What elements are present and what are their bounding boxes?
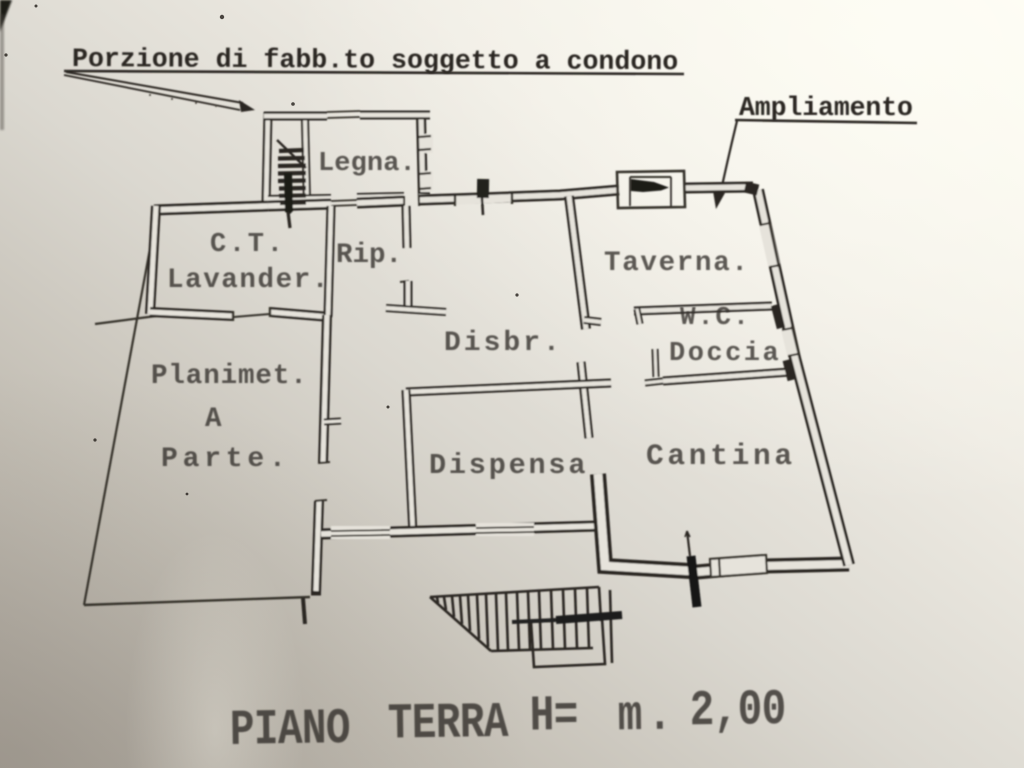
svg-text:Disbr.: Disbr. [444,328,563,359]
svg-text:Taverna.: Taverna. [604,248,750,279]
svg-text:H=: H= [529,687,578,745]
svg-text:Doccia: Doccia [669,339,781,369]
svg-text:C.T.: C.T. [210,230,286,260]
svg-text:A: A [205,404,222,435]
svg-text:Ampliamento: Ampliamento [739,93,913,123]
svg-text:Dispensa: Dispensa [429,449,588,482]
svg-text:W.C.: W.C. [680,302,751,332]
svg-text:Parte.: Parte. [161,444,291,475]
svg-text:m.: m. [617,687,677,745]
svg-text:Rip.: Rip. [336,240,402,271]
svg-text:Legna.: Legna. [318,149,416,179]
svg-text:Lavander.: Lavander. [167,265,330,296]
svg-text:Cantina: Cantina [646,439,796,473]
svg-text:Porzione di fabb.to soggetto a: Porzione di fabb.to soggetto a condono [72,44,678,77]
svg-text:2,00: 2,00 [689,681,786,739]
svg-text:PIANO: PIANO [230,701,351,760]
svg-text:TERRA: TERRA [387,694,509,753]
svg-text:Planimet.: Planimet. [151,361,308,392]
